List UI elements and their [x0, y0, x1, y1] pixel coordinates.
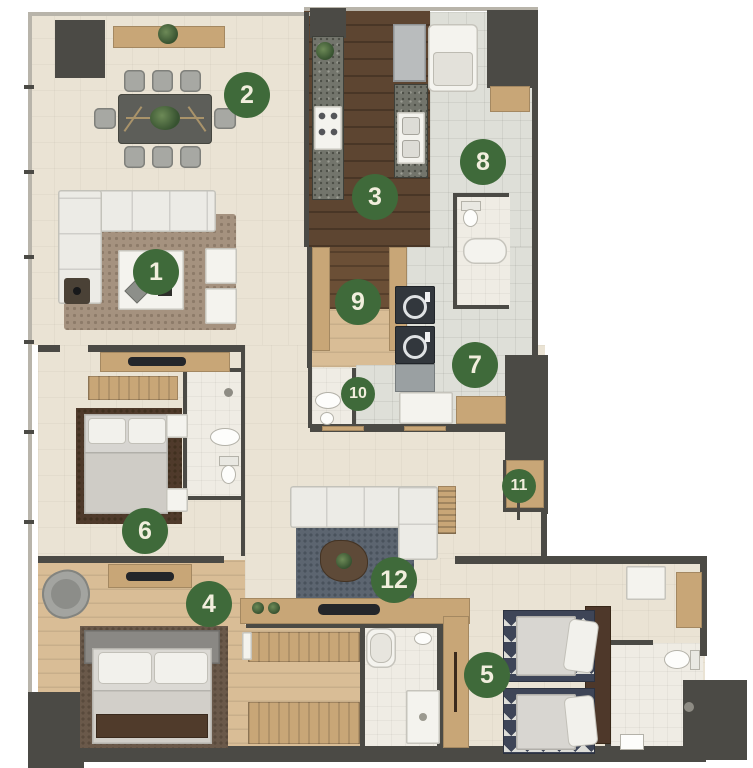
bath8-wall-bottom: [453, 305, 509, 309]
dryer-door: [403, 335, 427, 359]
table-centerpiece-plant-icon: [150, 106, 180, 130]
refrigerator: [393, 24, 426, 82]
window-tick: [24, 255, 34, 259]
dining-chair: [180, 70, 201, 92]
bed-bedroom6: [84, 414, 168, 514]
wardrobe-top: [248, 632, 360, 662]
console-plant-icon: [268, 602, 280, 614]
closet-door: [242, 632, 252, 660]
dining-chair: [152, 146, 173, 168]
side-table-decor: [73, 287, 81, 295]
service-door: [399, 392, 453, 424]
washer: [395, 286, 435, 324]
laundry-cabinet: [395, 364, 435, 392]
right-wall-family: [541, 512, 547, 560]
dining-chair: [152, 70, 173, 92]
bedroom4-north-wall: [38, 556, 224, 563]
console-plant-icon: [252, 602, 264, 614]
right-wall-lower: [544, 462, 548, 514]
wardrobe-handle: [454, 652, 457, 712]
family-coffee-table: [320, 540, 368, 582]
bedroom6-east-wall-a: [241, 345, 245, 371]
bedroom6-north-wall-a: [38, 345, 60, 352]
room-marker-9: 9: [335, 279, 381, 325]
window-tick: [24, 85, 34, 89]
pillow: [128, 418, 166, 444]
outer-wall-top: [28, 12, 310, 16]
window-tick: [24, 520, 34, 524]
shower-tray: [463, 238, 507, 264]
top-right-block: [487, 10, 538, 88]
bottom-wall: [84, 746, 706, 762]
armchair: [205, 288, 237, 324]
room-marker-11: 11: [502, 469, 536, 503]
room-marker-4: 4: [186, 581, 232, 627]
tv-icon: [318, 604, 380, 615]
right-mid-block: [505, 355, 548, 463]
bath10-toilet: [318, 409, 336, 425]
shelf-bedroom5: [676, 572, 702, 628]
armchair-seat: [433, 52, 473, 86]
counter-plant-icon: [316, 42, 334, 60]
bedroom6-east-wall-b: [241, 496, 245, 556]
bedroom6-north-wall-b: [88, 345, 245, 352]
lounge-chair-seat: [47, 575, 85, 613]
room-marker-7: 7: [452, 342, 498, 388]
sliding-door-panel: [322, 426, 364, 431]
bath6-toilet: [217, 456, 239, 486]
wardrobe-bedroom6: [88, 376, 178, 400]
closet-bath-wall: [360, 622, 365, 758]
window-tick: [24, 170, 34, 174]
bath6-wall-bottom: [183, 496, 245, 500]
right-wall-upper: [532, 88, 538, 355]
kitchen-left-wall: [304, 12, 309, 247]
nightstand: [166, 488, 188, 512]
table-plant-icon: [336, 553, 352, 569]
sliding-door-panel: [404, 426, 446, 431]
service-counter: [456, 396, 506, 424]
shoe-rack: [438, 486, 456, 534]
service-armchair: [428, 24, 478, 92]
bath10-wall-left: [308, 368, 312, 428]
window-tick: [24, 430, 34, 434]
service-shelf: [490, 86, 530, 112]
toilet-bowl: [463, 209, 478, 227]
dryer-panel: [425, 332, 430, 342]
washer-panel: [425, 292, 430, 302]
kitchen-sink: [397, 112, 425, 164]
tv-icon: [128, 357, 186, 366]
pillow: [563, 695, 598, 748]
room-marker-1: 1: [133, 249, 179, 295]
outer-wall-left: [28, 12, 32, 694]
side-table: [64, 278, 90, 304]
pillow: [98, 652, 152, 684]
room-marker-5: 5: [464, 652, 510, 698]
entry-column: [55, 20, 105, 78]
bedroom5-door: [626, 566, 666, 600]
dining-chair: [94, 108, 116, 129]
bath5-sink: [620, 734, 644, 750]
sink-basin: [402, 140, 420, 158]
floor-plan: 1 2 3 4 5 6 7 8 9 10 11 12: [0, 0, 753, 768]
bath8-wall-top: [453, 193, 509, 197]
room-marker-2: 2: [224, 72, 270, 118]
bath5-wall-top: [605, 640, 653, 645]
pillow: [88, 418, 126, 444]
bed4-bench: [96, 714, 208, 738]
pillow: [154, 652, 208, 684]
room-marker-12: 12: [371, 557, 417, 603]
toilet-bowl: [664, 650, 690, 669]
dining-chair: [124, 146, 145, 168]
kitchen-top-pillar: [310, 8, 346, 38]
plant-icon: [158, 24, 178, 44]
wardrobe-bottom: [248, 702, 360, 744]
dining-chair: [124, 70, 145, 92]
marker11-stem: [517, 500, 520, 520]
armchair: [205, 248, 237, 284]
shower-head-icon: [684, 702, 694, 712]
room-marker-8: 8: [460, 139, 506, 185]
nightstand: [166, 414, 188, 438]
tv-icon: [126, 572, 174, 581]
tub-basin: [370, 633, 392, 663]
bath4-sink: [414, 632, 432, 645]
table-runner: [124, 106, 143, 132]
toilet-bowl: [320, 412, 334, 425]
bath5-toilet: [664, 648, 698, 670]
cooktop: [314, 106, 342, 150]
duvet: [84, 452, 168, 514]
room-marker-6: 6: [122, 508, 168, 554]
shower-head-icon: [224, 388, 233, 397]
bathtub: [366, 628, 396, 668]
table-runner: [188, 106, 207, 132]
toilet-tank: [690, 650, 700, 670]
room-marker-10: 10: [341, 377, 375, 411]
pantry-counter-left: [312, 247, 330, 351]
bath4-shower: [406, 690, 440, 744]
family-sofa-chaise: [398, 486, 438, 560]
bath8-wall-left: [453, 193, 457, 309]
bath6-sink: [210, 428, 240, 446]
drain-icon: [419, 713, 427, 721]
bath10-sink: [315, 392, 341, 409]
toilet-bowl: [221, 465, 236, 484]
washer-door: [403, 295, 427, 319]
bottom-left-block: [28, 692, 84, 768]
bedroom5-north-wall: [455, 556, 707, 564]
dining-chair: [180, 146, 201, 168]
dryer: [395, 326, 435, 364]
sink-basin: [402, 117, 420, 135]
maid-toilet: [461, 201, 479, 227]
room-marker-3: 3: [352, 174, 398, 220]
window-tick: [24, 340, 34, 344]
bath6-wall-right: [241, 371, 245, 500]
